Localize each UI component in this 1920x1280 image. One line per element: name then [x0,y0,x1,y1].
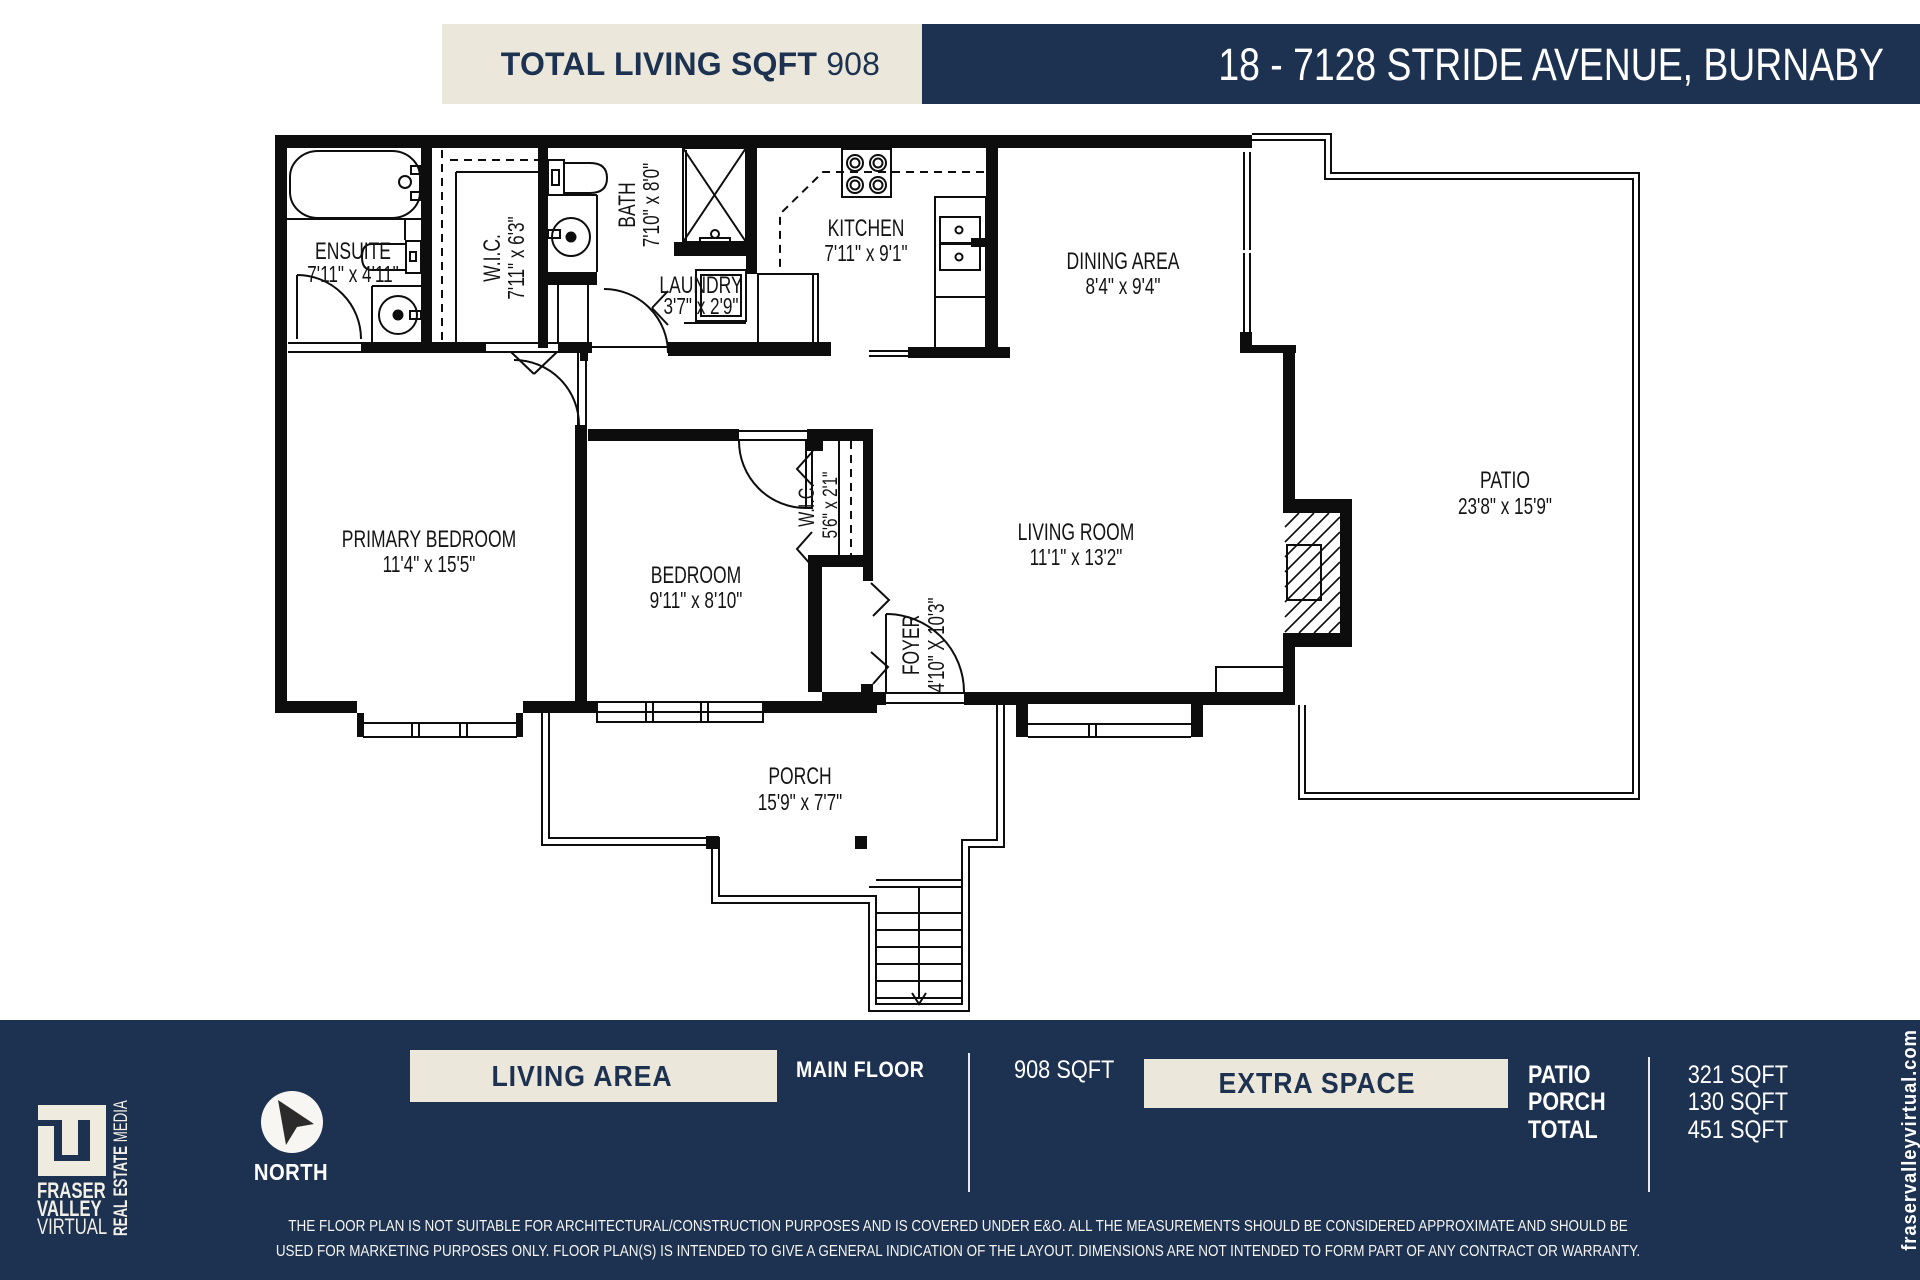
svg-text:MAIN FLOOR: MAIN FLOOR [796,1058,924,1082]
svg-text:9'11" x 8'10": 9'11" x 8'10" [650,587,743,613]
svg-text:11'1" x 13'2": 11'1" x 13'2" [1030,544,1123,570]
svg-text:BEDROOM: BEDROOM [651,562,741,588]
svg-text:PORCH: PORCH [1528,1087,1606,1115]
svg-text:BATH: BATH [614,182,640,227]
svg-text:130 SQFT: 130 SQFT [1688,1088,1788,1116]
svg-text:15'9" x 7'7": 15'9" x 7'7" [758,789,843,815]
svg-text:7'11" x 4'11": 7'11" x 4'11" [307,261,399,287]
svg-text:321 SQFT: 321 SQFT [1688,1061,1788,1089]
svg-text:DINING AREA: DINING AREA [1067,248,1180,274]
svg-text:451 SQFT: 451 SQFT [1688,1116,1788,1144]
svg-text:W.I.C.: W.I.C. [796,483,820,527]
svg-text:908 SQFT: 908 SQFT [1014,1056,1114,1084]
svg-text:THE FLOOR PLAN IS NOT SUITABLE: THE FLOOR PLAN IS NOT SUITABLE FOR ARCHI… [288,1218,1628,1235]
svg-text:3'7" x 2'9": 3'7" x 2'9" [664,293,739,319]
svg-text:fraservalleyvirtual.com: fraservalleyvirtual.com [1899,1029,1920,1250]
svg-text:PRIMARY BEDROOM: PRIMARY BEDROOM [342,526,516,552]
svg-text:FOYER: FOYER [898,615,924,675]
svg-text:NORTH: NORTH [254,1159,328,1186]
svg-text:11'4" x 15'5": 11'4" x 15'5" [383,551,476,577]
svg-text:PATIO: PATIO [1528,1060,1590,1088]
svg-text:5'6" x 2'1": 5'6" x 2'1" [818,472,842,539]
svg-text:7'10" x 8'0": 7'10" x 8'0" [638,163,664,248]
svg-text:4'10" X 10'3": 4'10" X 10'3" [925,598,950,693]
svg-text:EXTRA SPACE: EXTRA SPACE [1219,1067,1416,1099]
svg-text:7'11" x 6'3": 7'11" x 6'3" [503,216,529,299]
svg-text:PATIO: PATIO [1480,467,1530,493]
svg-text:TOTAL: TOTAL [1528,1115,1598,1143]
svg-text:VIRTUAL: VIRTUAL [37,1215,107,1240]
svg-text:KITCHEN: KITCHEN [828,215,905,241]
svg-text:PORCH: PORCH [768,763,831,789]
svg-text:USED FOR MARKETING PURPOSES ON: USED FOR MARKETING PURPOSES ONLY. FLOOR … [276,1243,1640,1260]
svg-text:W.I.C.: W.I.C. [479,234,505,282]
svg-text:23'8" x 15'9": 23'8" x 15'9" [1458,493,1552,519]
svg-text:LIVING AREA: LIVING AREA [491,1060,672,1092]
svg-text:8'4" x 9'4": 8'4" x 9'4" [1086,273,1161,299]
svg-text:7'11" x 9'1": 7'11" x 9'1" [824,240,907,266]
svg-text:REAL ESTATE MEDIA: REAL ESTATE MEDIA [111,1100,132,1236]
svg-text:LIVING ROOM: LIVING ROOM [1018,519,1135,545]
